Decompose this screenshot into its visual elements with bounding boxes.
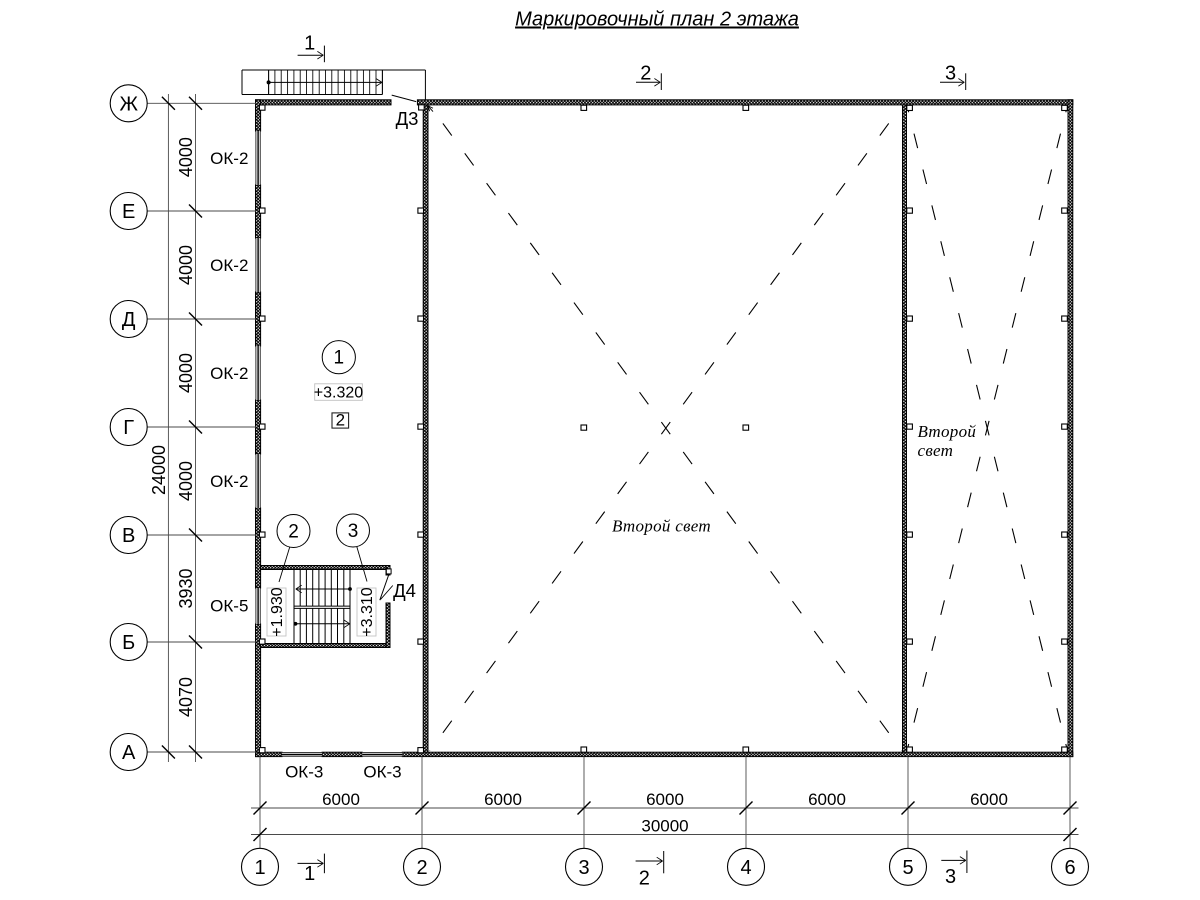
svg-text:1: 1: [304, 863, 315, 885]
svg-text:Д: Д: [122, 309, 136, 331]
svg-text:3: 3: [578, 857, 589, 879]
svg-text:В: В: [122, 525, 135, 547]
svg-text:4000: 4000: [176, 461, 196, 501]
svg-text:+1.930: +1.930: [269, 587, 286, 636]
svg-text:2: 2: [639, 868, 650, 890]
svg-text:1: 1: [254, 857, 265, 879]
svg-text:6000: 6000: [322, 790, 360, 809]
svg-text:ОК-2: ОК-2: [210, 364, 248, 383]
svg-text:5: 5: [902, 857, 913, 879]
svg-text:6000: 6000: [484, 790, 522, 809]
svg-text:Второй: Второй: [918, 422, 977, 441]
svg-text:3930: 3930: [176, 568, 196, 608]
svg-text:4: 4: [740, 857, 751, 879]
svg-text:4070: 4070: [176, 677, 196, 717]
svg-text:6000: 6000: [808, 790, 846, 809]
svg-text:ОК-3: ОК-3: [285, 763, 323, 782]
svg-text:Г: Г: [123, 417, 134, 439]
svg-text:+3.320: +3.320: [314, 384, 363, 401]
svg-text:6: 6: [1064, 857, 1075, 879]
svg-text:1: 1: [334, 348, 345, 369]
svg-text:ОК-2: ОК-2: [210, 472, 248, 491]
svg-text:Е: Е: [122, 201, 135, 223]
svg-text:2: 2: [288, 521, 299, 542]
svg-text:6000: 6000: [646, 790, 684, 809]
svg-text:свет: свет: [918, 441, 954, 460]
svg-text:2: 2: [416, 857, 427, 879]
svg-text:3: 3: [945, 62, 956, 84]
svg-text:1: 1: [304, 32, 315, 54]
svg-text:24000: 24000: [149, 445, 169, 495]
svg-text:ОК-2: ОК-2: [210, 149, 248, 168]
svg-text:4000: 4000: [176, 245, 196, 285]
svg-text:ОК-3: ОК-3: [363, 763, 401, 782]
svg-text:3: 3: [945, 866, 956, 888]
svg-text:+3.310: +3.310: [359, 587, 376, 636]
svg-text:Второй свет: Второй свет: [612, 516, 711, 535]
svg-text:30000: 30000: [641, 817, 688, 836]
svg-text:2: 2: [640, 62, 651, 84]
svg-text:А: А: [122, 742, 136, 764]
svg-text:Ж: Ж: [119, 93, 138, 115]
svg-text:ОК-5: ОК-5: [210, 597, 248, 616]
svg-text:ОК-2: ОК-2: [210, 256, 248, 275]
svg-text:2: 2: [336, 411, 345, 430]
svg-text:Маркировочный план 2 этажа: Маркировочный план 2 этажа: [515, 9, 799, 31]
svg-text:4000: 4000: [176, 353, 196, 393]
svg-text:3: 3: [348, 521, 359, 542]
svg-text:6000: 6000: [970, 790, 1008, 809]
svg-text:Б: Б: [122, 632, 135, 654]
svg-text:Д4: Д4: [393, 580, 416, 601]
svg-text:4000: 4000: [176, 137, 196, 177]
svg-text:Д3: Д3: [396, 108, 419, 129]
